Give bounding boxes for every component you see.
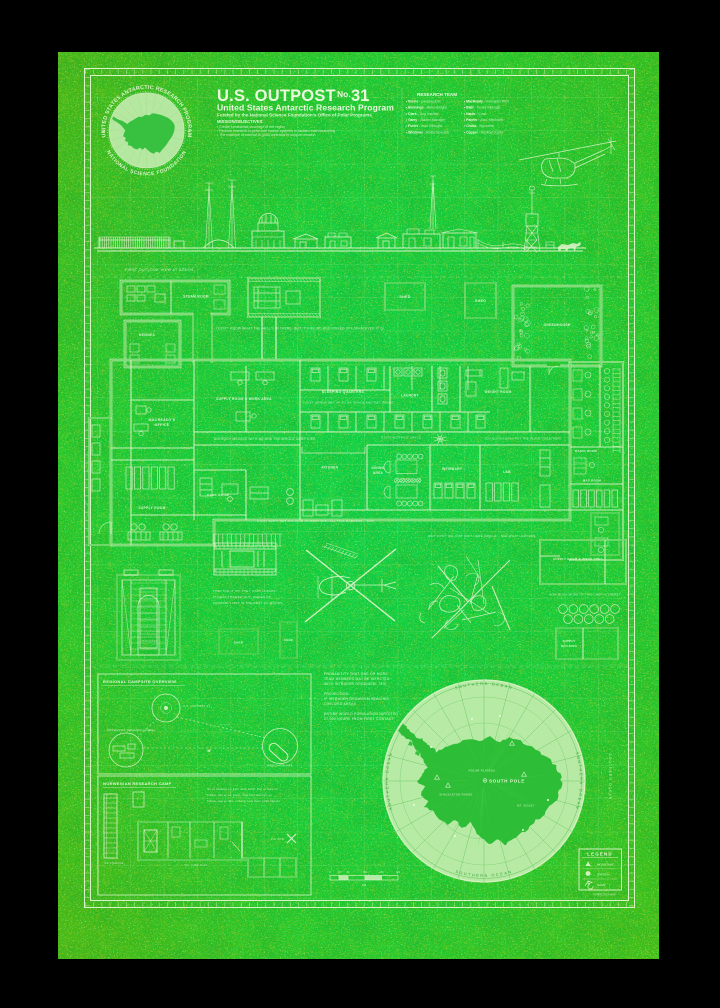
svg-text:PROJECTION:: PROJECTION: (324, 692, 349, 696)
svg-text:PROBABILITY THAT ONE OR MORE: PROBABILITY THAT ONE OR MORE (324, 672, 388, 676)
svg-text:STATION: STATION (597, 872, 610, 876)
svg-text:KITCHEN: KITCHEN (322, 466, 339, 470)
svg-text:SOUTH POLE: SOUTH POLE (489, 778, 525, 783)
svg-text:I DON'T KNOW WHAT THE HELL'S I: I DON'T KNOW WHAT THE HELL'S IN THERE, B… (216, 327, 385, 331)
svg-text:A GUY CAN'T GET ANY KIND OF RE: A GUY CAN'T GET ANY KIND OF REST WITH AL… (257, 519, 375, 523)
svg-text:CIVILIZED AREAS: CIVILIZED AREAS (324, 702, 357, 706)
svg-text:19.4 KM: 19.4 KM (220, 724, 231, 726)
svg-text:Funded by the National Science: Funded by the National Science Foundatio… (217, 113, 372, 118)
svg-text:WITH INTRUDER ORGANISM: 75%: WITH INTRUDER ORGANISM: 75% (324, 682, 386, 686)
svg-text:INFIRMARY: INFIRMARY (442, 467, 463, 471)
svg-text:SHED: SHED (475, 299, 486, 303)
svg-text:ANYBODY MESSES WITH ME AND THE: ANYBODY MESSES WITH ME AND THE WHOLE CAM… (214, 437, 317, 441)
svg-text:GREENHOUSE: GREENHOUSE (543, 323, 571, 327)
svg-text:FIRST OUTLOOK VIEW AT SOUTH: FIRST OUTLOOK VIEW AT SOUTH (125, 268, 194, 272)
svg-text:United States Antarctic Resear: United States Antarctic Research Program (217, 102, 394, 112)
svg-text:IT GETS THAWED OUT, WAKES UP,: IT GETS THAWED OUT, WAKES UP, (213, 595, 272, 599)
svg-text:CAMP: CAMP (597, 883, 606, 887)
svg-text:WHY DON'T WE JUST WAIT HERE AW: WHY DON'T WE JUST WAIT HERE AWHILE... SE… (428, 534, 537, 538)
svg-text:bikkje, det er en slags ting!: bikkje, det er en slags ting! Det imiter… (207, 793, 272, 797)
svg-text:MT. SIDLEY: MT. SIDLEY (517, 804, 535, 808)
svg-text:• Garry - Station Manager: • Garry - Station Manager (406, 118, 446, 122)
svg-text:PROBABLY NOT IN THE BEST OF MO: PROBABLY NOT IN THE BEST OF MOODS. (213, 601, 284, 605)
svg-text:AREA: AREA (373, 471, 384, 475)
svg-text:THEY DIG IT UP, THEY CART IT B: THEY DIG IT UP, THEY CART IT BACK. (213, 589, 277, 593)
svg-text:• Norris - Geophysicist: • Norris - Geophysicist (406, 99, 441, 103)
svg-text:MOUNTAIN: MOUNTAIN (597, 862, 613, 866)
svg-text:RADIO ROOM: RADIO ROOM (575, 449, 597, 453)
svg-text:NORWEGIAN RESEARCH CAMP: NORWEGIAN RESEARCH CAMP (103, 781, 172, 786)
svg-text:8 KM: 8 KM (149, 730, 156, 732)
svg-text:NO. CAMP PLAN: NO. CAMP PLAN (185, 864, 208, 867)
svg-text:• Clark - Dog Handler: • Clark - Dog Handler (406, 112, 440, 116)
svg-text:OFFICE: OFFICE (155, 423, 170, 427)
svg-text:✦: ✦ (102, 129, 106, 134)
svg-text:160: 160 (363, 870, 368, 874)
svg-text:• Childs - Mechanic: • Childs - Mechanic (464, 124, 494, 128)
svg-text:SUPPLY ROOM: SUPPLY ROOM (138, 506, 165, 510)
svg-text:SHED: SHED (284, 638, 293, 642)
svg-text:SHACKLETON RANGE: SHACKLETON RANGE (439, 793, 472, 797)
svg-text:• Fuchs - Asst. Biologist: • Fuchs - Asst. Biologist (406, 124, 442, 128)
svg-text:• Copper - Medical Doctor: • Copper - Medical Doctor (464, 130, 504, 134)
svg-text:POLAR PLATEAU: POLAR PLATEAU (469, 769, 496, 773)
svg-text:RESEARCH TEAM: RESEARCH TEAM (417, 92, 457, 97)
svg-text:Se til helvete og kom dere vek: Se til helvete og kom dere vekk. Det er … (207, 787, 279, 791)
svg-text:STATION/OFFICE SPACE: STATION/OFFICE SPACE (381, 435, 421, 439)
svg-text:• Palmer - Asst. Mechanic: • Palmer - Asst. Mechanic (464, 118, 504, 122)
svg-text:F: F (137, 798, 139, 801)
svg-text:bikkje, det er ikke virkelig k: bikkje, det er ikke virkelig kom dere ve… (207, 799, 281, 803)
svg-text:IF INTRUDER ORGANISM REACHES: IF INTRUDER ORGANISM REACHES (324, 697, 390, 701)
svg-text:LEGEND: LEGEND (587, 852, 613, 857)
svg-text:• Windows - Radio Operator: • Windows - Radio Operator (406, 130, 450, 134)
svg-text:MAP ROOM: MAP ROOM (583, 479, 602, 483)
svg-text:240: 240 (379, 870, 384, 874)
svg-text:SHED: SHED (399, 295, 410, 299)
svg-text:ANTARCTICA MAP: ANTARCTICA MAP (593, 893, 616, 897)
svg-text:ICE STORAGE: ICE STORAGE (104, 862, 124, 865)
svg-text:KM: KM (362, 883, 367, 887)
svg-text:MACREADY'S: MACREADY'S (148, 418, 175, 422)
svg-text:No.: No. (337, 89, 351, 99)
svg-text:SOUTHERN OCEAN: SOUTHERN OCEAN (608, 754, 612, 801)
svg-text:MISSION/OBJECTIVES: MISSION/OBJECTIVES (217, 119, 263, 124)
svg-text:27,000 HOURS FROM FIRST CONTAC: 27,000 HOURS FROM FIRST CONTACT (324, 717, 394, 721)
svg-text:HOW MUCH MORE OF THIS CRAP IS: HOW MUCH MORE OF THIS CRAP IS THERE? (549, 593, 621, 597)
svg-text:STEAM ROOM: STEAM ROOM (183, 295, 209, 299)
svg-text:LAB: LAB (503, 470, 511, 474)
svg-text:• Bennings - Meteorologist: • Bennings - Meteorologist (406, 106, 447, 110)
svg-text:• Blair - Senior Biologist: • Blair - Senior Biologist (464, 106, 500, 110)
svg-text:• MacReady - Helicopter Pilot: • MacReady - Helicopter Pilot (464, 99, 509, 103)
svg-text:SLEEPING QUARTERS: SLEEPING QUARTERS (322, 390, 365, 394)
svg-text:✦: ✦ (187, 129, 191, 134)
svg-text:TEAM MEMBERS MAY BE INFECTED: TEAM MEMBERS MAY BE INFECTED (324, 677, 390, 681)
svg-text:DIG SITE: DIG SITE (271, 838, 284, 841)
svg-text:U.S. OUTPOST 31: U.S. OUTPOST 31 (183, 704, 210, 708)
svg-text:• Nauls - Cook: • Nauls - Cook (464, 112, 487, 116)
svg-text:WEIGHT ROOM: WEIGHT ROOM (485, 390, 512, 394)
svg-text:KENNEL: KENNEL (139, 333, 156, 337)
svg-text:SUPPLY: SUPPLY (562, 639, 575, 643)
svg-text:BUILDING: BUILDING (561, 644, 578, 648)
svg-text:• The example of science is go: • The example of science is good contrac… (217, 133, 315, 137)
svg-text:320: 320 (396, 870, 401, 874)
svg-text:WRECKAGE SITE: WRECKAGE SITE (267, 764, 293, 768)
svg-text:LAUNDRY: LAUNDRY (401, 394, 419, 398)
svg-text:ENTIRE WORLD POPULATION INFECT: ENTIRE WORLD POPULATION INFECTED (324, 712, 399, 716)
svg-text:SUPPLY ROOM & WORK AREA: SUPPLY ROOM & WORK AREA (216, 397, 272, 401)
svg-text:I JUST WANNA GET UP TO MY SHAC: I JUST WANNA GET UP TO MY SHACK AND GET … (303, 400, 395, 404)
svg-text:SUPPLY ROOM & WORK AREA: SUPPLY ROOM & WORK AREA (553, 557, 603, 561)
svg-text:REGIONAL CAMPSITE OVERVIEW: REGIONAL CAMPSITE OVERVIEW (103, 679, 176, 684)
svg-text:YOU GUYS GONNA PUT THE PLANS T: YOU GUYS GONNA PUT THE PLANS TOGETHER? (484, 436, 562, 440)
svg-text:SHED: SHED (234, 641, 244, 645)
svg-text:DARK ROOM: DARK ROOM (207, 493, 229, 497)
svg-text:DINING: DINING (372, 466, 385, 470)
